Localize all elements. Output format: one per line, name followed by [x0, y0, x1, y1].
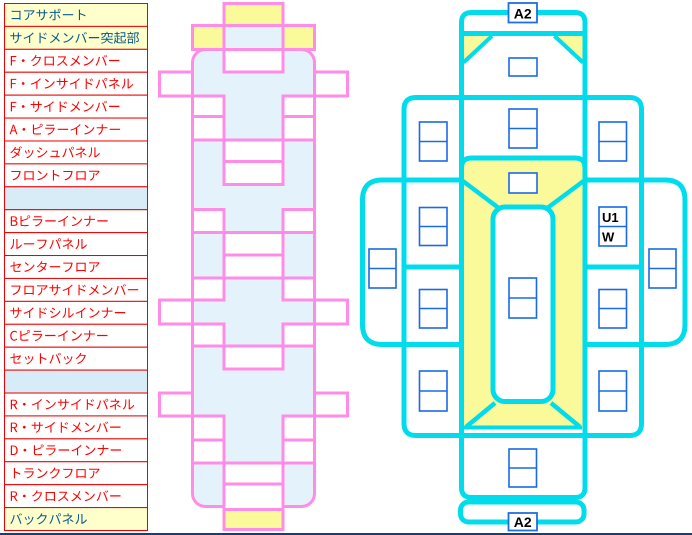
svg-text:U1: U1: [602, 210, 619, 225]
svg-text:W: W: [602, 230, 615, 245]
svg-text:A2: A2: [514, 6, 532, 22]
svg-text:A2: A2: [514, 514, 532, 530]
